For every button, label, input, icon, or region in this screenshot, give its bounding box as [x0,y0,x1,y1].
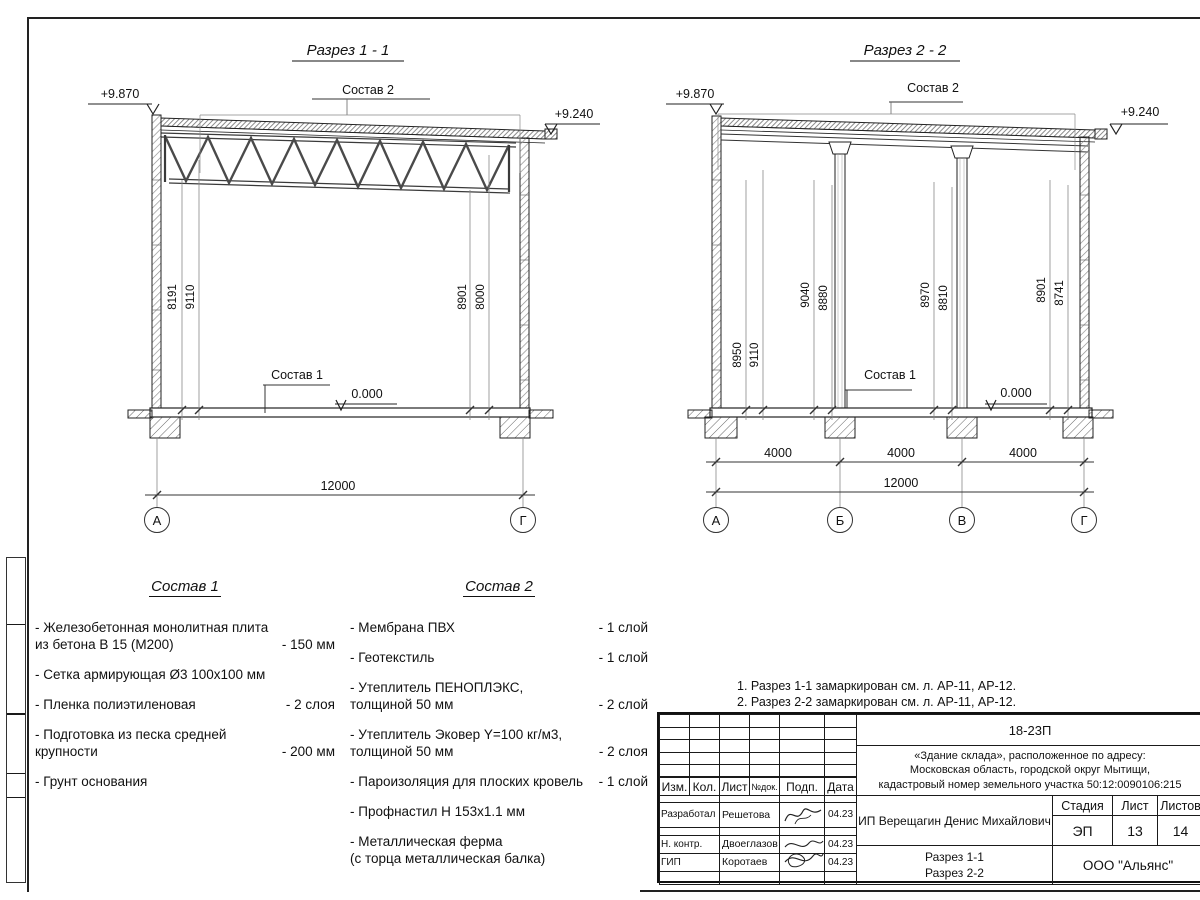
tb-name: Двоеглазов [722,835,778,853]
floor-slab [688,408,1113,438]
callout-label: Состав 2 [342,83,394,97]
dim-label: 12000 [321,479,356,493]
roof-deck [721,118,1107,142]
list-item: - Пароизоляция для плоских кровель- 1 сл… [350,773,648,790]
vertical-dimensions [742,170,1072,420]
item-name: - Профнастил Н 153х1.1 мм [350,803,593,820]
axis-label: А [153,513,162,528]
roof-beam [721,134,1088,152]
list-item: - Профнастил Н 153х1.1 мм [350,803,648,820]
tb-doc-number: 18-23П [856,714,1200,746]
drawing-notes: 1. Разрез 1-1 замаркирован см. л. АР-11,… [737,678,1016,710]
tb-content: Разрез 1-1 Разрез 2-2 [856,845,1053,885]
sostav-1-list: Состав 1 - Железобетонная монолитная пли… [35,578,335,803]
wall-right [1080,137,1089,417]
bottom-dimension: 12000 [145,438,535,507]
frame-top [27,17,1200,19]
sostav-2-list: Состав 2 - Мембрана ПВХ- 1 слой - Геотек… [350,578,648,880]
level-value: +9.870 [101,87,140,101]
tb-grid-cell [779,714,825,777]
list-item: - Подготовка из песка средней крупности-… [35,726,335,760]
tb-header-izm: Изм. [659,777,690,796]
level-value: +9.240 [555,107,594,121]
wall-right [520,138,529,417]
item-name: - Подготовка из песка средней крупности [35,726,282,760]
level-value: +9.240 [1121,105,1160,119]
level-mark-left: +9.870 [88,87,159,114]
axis-bubbles: А Б В Г [704,508,1097,533]
level-value: 0.000 [1000,386,1031,400]
dim-label: 4000 [887,446,915,460]
dim-label: 4000 [764,446,792,460]
item-value: - 200 мм [282,743,335,760]
tb-stage-label: Стадия [1052,795,1113,816]
item-name: - Железобетонная монолитная плита из бет… [35,619,282,653]
tb-grid-cell [689,714,720,777]
axis-label: Г [519,513,526,528]
list-item: - Металлическая ферма (с торца металличе… [350,833,648,867]
tb-date: 04.23 [824,853,857,871]
tb-grid-cell [719,714,750,777]
tb-name: Решетова [722,802,778,827]
callout-label: Состав 1 [271,368,323,382]
sostav-1-title: Состав 1 [35,578,335,595]
tb-header-podp: Подп. [779,777,825,796]
tb-grid-cell [749,714,780,777]
tb-role: ГИП [661,853,718,871]
tb-header-data: Дата [824,777,857,796]
dim-label: 9110 [185,285,197,310]
dim-label: 8970 [920,282,932,308]
wall-left [712,116,721,417]
tb-header-kol: Кол. [689,777,720,796]
tb-grid-cell [824,714,857,777]
dim-label: 8810 [938,285,950,311]
dim-label: 4000 [1009,446,1037,460]
tb-name: Коротаев [722,853,778,871]
margin-strip [6,557,26,883]
list-item: - Пленка полиэтиленовая- 2 слоя [35,696,335,713]
item-name: - Пароизоляция для плоских кровель [350,773,593,790]
list-item: - Геотекстиль- 1 слой [350,649,648,666]
item-name: - Геотекстиль [350,649,593,666]
list-item: - Мембрана ПВХ- 1 слой [350,619,648,636]
item-name: - Пленка полиэтиленовая [35,696,285,713]
item-value: - 2 слоя [286,696,335,713]
dim-label: 8191 [167,284,179,310]
axis-label: Б [836,513,845,528]
list-item: - Утеплитель ПЕНОПЛЭКС, толщиной 50 мм- … [350,679,648,713]
axis-bubbles: А Г [145,508,536,533]
dim-label: 9110 [749,343,761,368]
level-mark-left: +9.870 [666,87,724,114]
item-value: - 2 слой [599,696,648,713]
frame-left [27,17,29,892]
tb-stage-value: ЭП [1052,815,1113,846]
tb-date: 04.23 [824,835,857,853]
tb-sheet-label: Лист [1112,795,1158,816]
list-item: - Железобетонная монолитная плита из бет… [35,619,335,653]
tb-client: ИП Верещагин Денис Михайлович [856,795,1053,846]
callout-floor: Состав 1 [263,368,330,413]
tb-sheet-value: 13 [1112,815,1158,846]
section-1-drawing: Разрез 1 - 1 [40,30,600,545]
tb-company: ООО "Альянс" [1052,845,1200,885]
callout-label: Состав 2 [907,81,959,95]
section-2-drawing: Разрез 2 - 2 [650,30,1200,545]
signature [781,835,824,871]
dim-label: 8000 [475,284,487,310]
dim-label: 8880 [818,285,830,311]
tb-role: Разработал [661,802,718,827]
item-name: - Сетка армирующая Ø3 100х100 мм [35,666,285,683]
item-value: - 1 слой [599,619,648,636]
axis-label: А [712,513,721,528]
item-name: - Грунт основания [35,773,285,790]
item-value: - 150 мм [282,636,335,653]
tb-object-description: «Здание склада», расположенное по адресу… [856,745,1200,796]
dim-label: 8950 [732,342,744,368]
list-item: - Грунт основания [35,773,335,790]
truss [161,133,516,193]
tb-header-list: Лист [719,777,750,796]
axis-label: Г [1080,513,1087,528]
item-name: - Утеплитель ПЕНОПЛЭКС, толщиной 50 мм [350,679,593,713]
section-2-title: Разрез 2 - 2 [850,42,960,61]
dim-label: 8901 [1036,277,1048,303]
dim-label: 12000 [884,476,919,490]
item-value: - 2 слоя [599,743,648,760]
note-line: 2. Разрез 2-2 замаркирован см. л. АР-11,… [737,694,1016,710]
level-value: +9.870 [676,87,715,101]
dim-label: 9040 [800,282,812,308]
bottom-dimension: 4000 4000 4000 12000 [706,438,1094,507]
title-block: Изм. Кол. Лист №док. Подп. Дата Разработ… [657,712,1200,883]
level-mark-zero: 0.000 [985,386,1047,410]
item-name: - Утеплитель Эковер Y=100 кг/м3, толщино… [350,726,593,760]
sostav-2-title: Состав 2 [350,578,648,595]
dim-label: 8741 [1054,280,1066,306]
tb-sheets-label: Листов [1157,795,1200,816]
list-item: - Сетка армирующая Ø3 100х100 мм [35,666,335,683]
signature [781,802,824,827]
item-name: - Мембрана ПВХ [350,619,593,636]
axis-label: В [958,513,967,528]
item-value: - 1 слой [599,649,648,666]
item-value: - 1 слой [599,773,648,790]
section-2-title-text: Разрез 2 - 2 [864,42,947,59]
level-mark-right: +9.240 [545,107,600,134]
tb-date: 04.23 [824,802,857,827]
item-name: - Металлическая ферма (с торца металличе… [350,833,593,867]
note-line: 1. Разрез 1-1 замаркирован см. л. АР-11,… [737,678,1016,694]
level-mark-zero: 0.000 [335,387,397,410]
level-value: 0.000 [351,387,382,401]
section-1-title: Разрез 1 - 1 [292,42,404,61]
tb-header-ndok: №док. [749,777,780,796]
tb-grid-cell [659,714,690,777]
tb-sheets-value: 14 [1157,815,1200,846]
vertical-dimensions [178,155,493,420]
column-v [951,146,973,408]
dim-label: 8901 [457,284,469,310]
wall-left [152,115,161,417]
tb-role: Н. контр. [661,835,718,853]
section-1-title-text: Разрез 1 - 1 [307,42,390,59]
list-item: - Утеплитель Эковер Y=100 кг/м3, толщино… [350,726,648,760]
frame-bottom [640,890,1200,892]
callout-label: Состав 1 [864,368,916,382]
level-mark-right: +9.240 [1110,105,1168,134]
callout-floor: Состав 1 [845,368,916,408]
